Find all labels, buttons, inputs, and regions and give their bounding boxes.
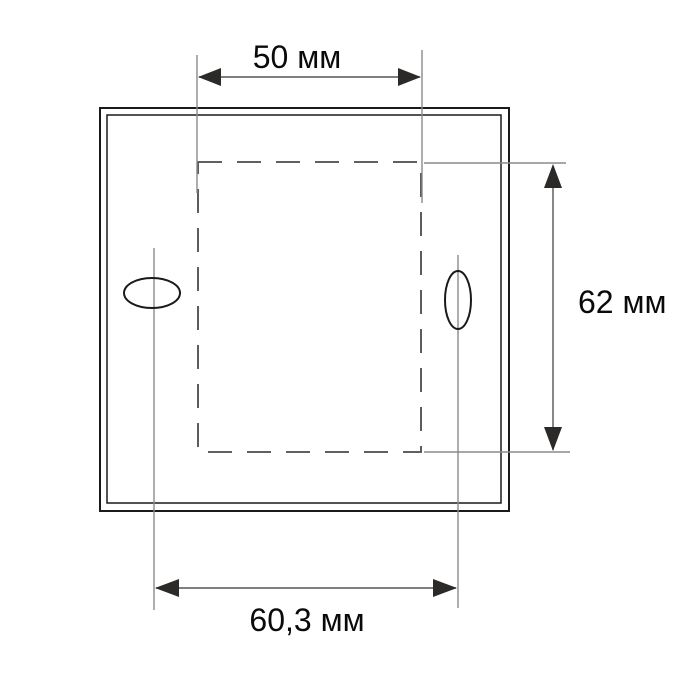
arrowhead-left-icon [155,579,179,597]
arrowhead-up-icon [544,164,562,188]
panel-frame-outer [100,108,509,511]
dimension-label-top: 50 мм [253,39,341,75]
dimension-label-bottom: 60,3 мм [249,602,364,638]
arrowhead-right-icon [433,579,457,597]
cutout-dashed-outline [198,162,421,452]
dimension-top: 50 мм [197,39,422,203]
mounting-hole-left [124,278,180,308]
dimension-right: 62 мм [424,163,666,452]
dimension-bottom: 60,3 мм [155,579,457,638]
dimension-drawing: 50 мм 62 мм 60,3 мм [0,0,700,700]
panel-frame-inner [107,115,501,503]
dimension-label-right: 62 мм [578,284,666,320]
arrowhead-right-icon [398,68,421,86]
drawing-canvas: 50 мм 62 мм 60,3 мм [0,0,700,700]
arrowhead-left-icon [198,68,221,86]
arrowhead-down-icon [544,427,562,451]
